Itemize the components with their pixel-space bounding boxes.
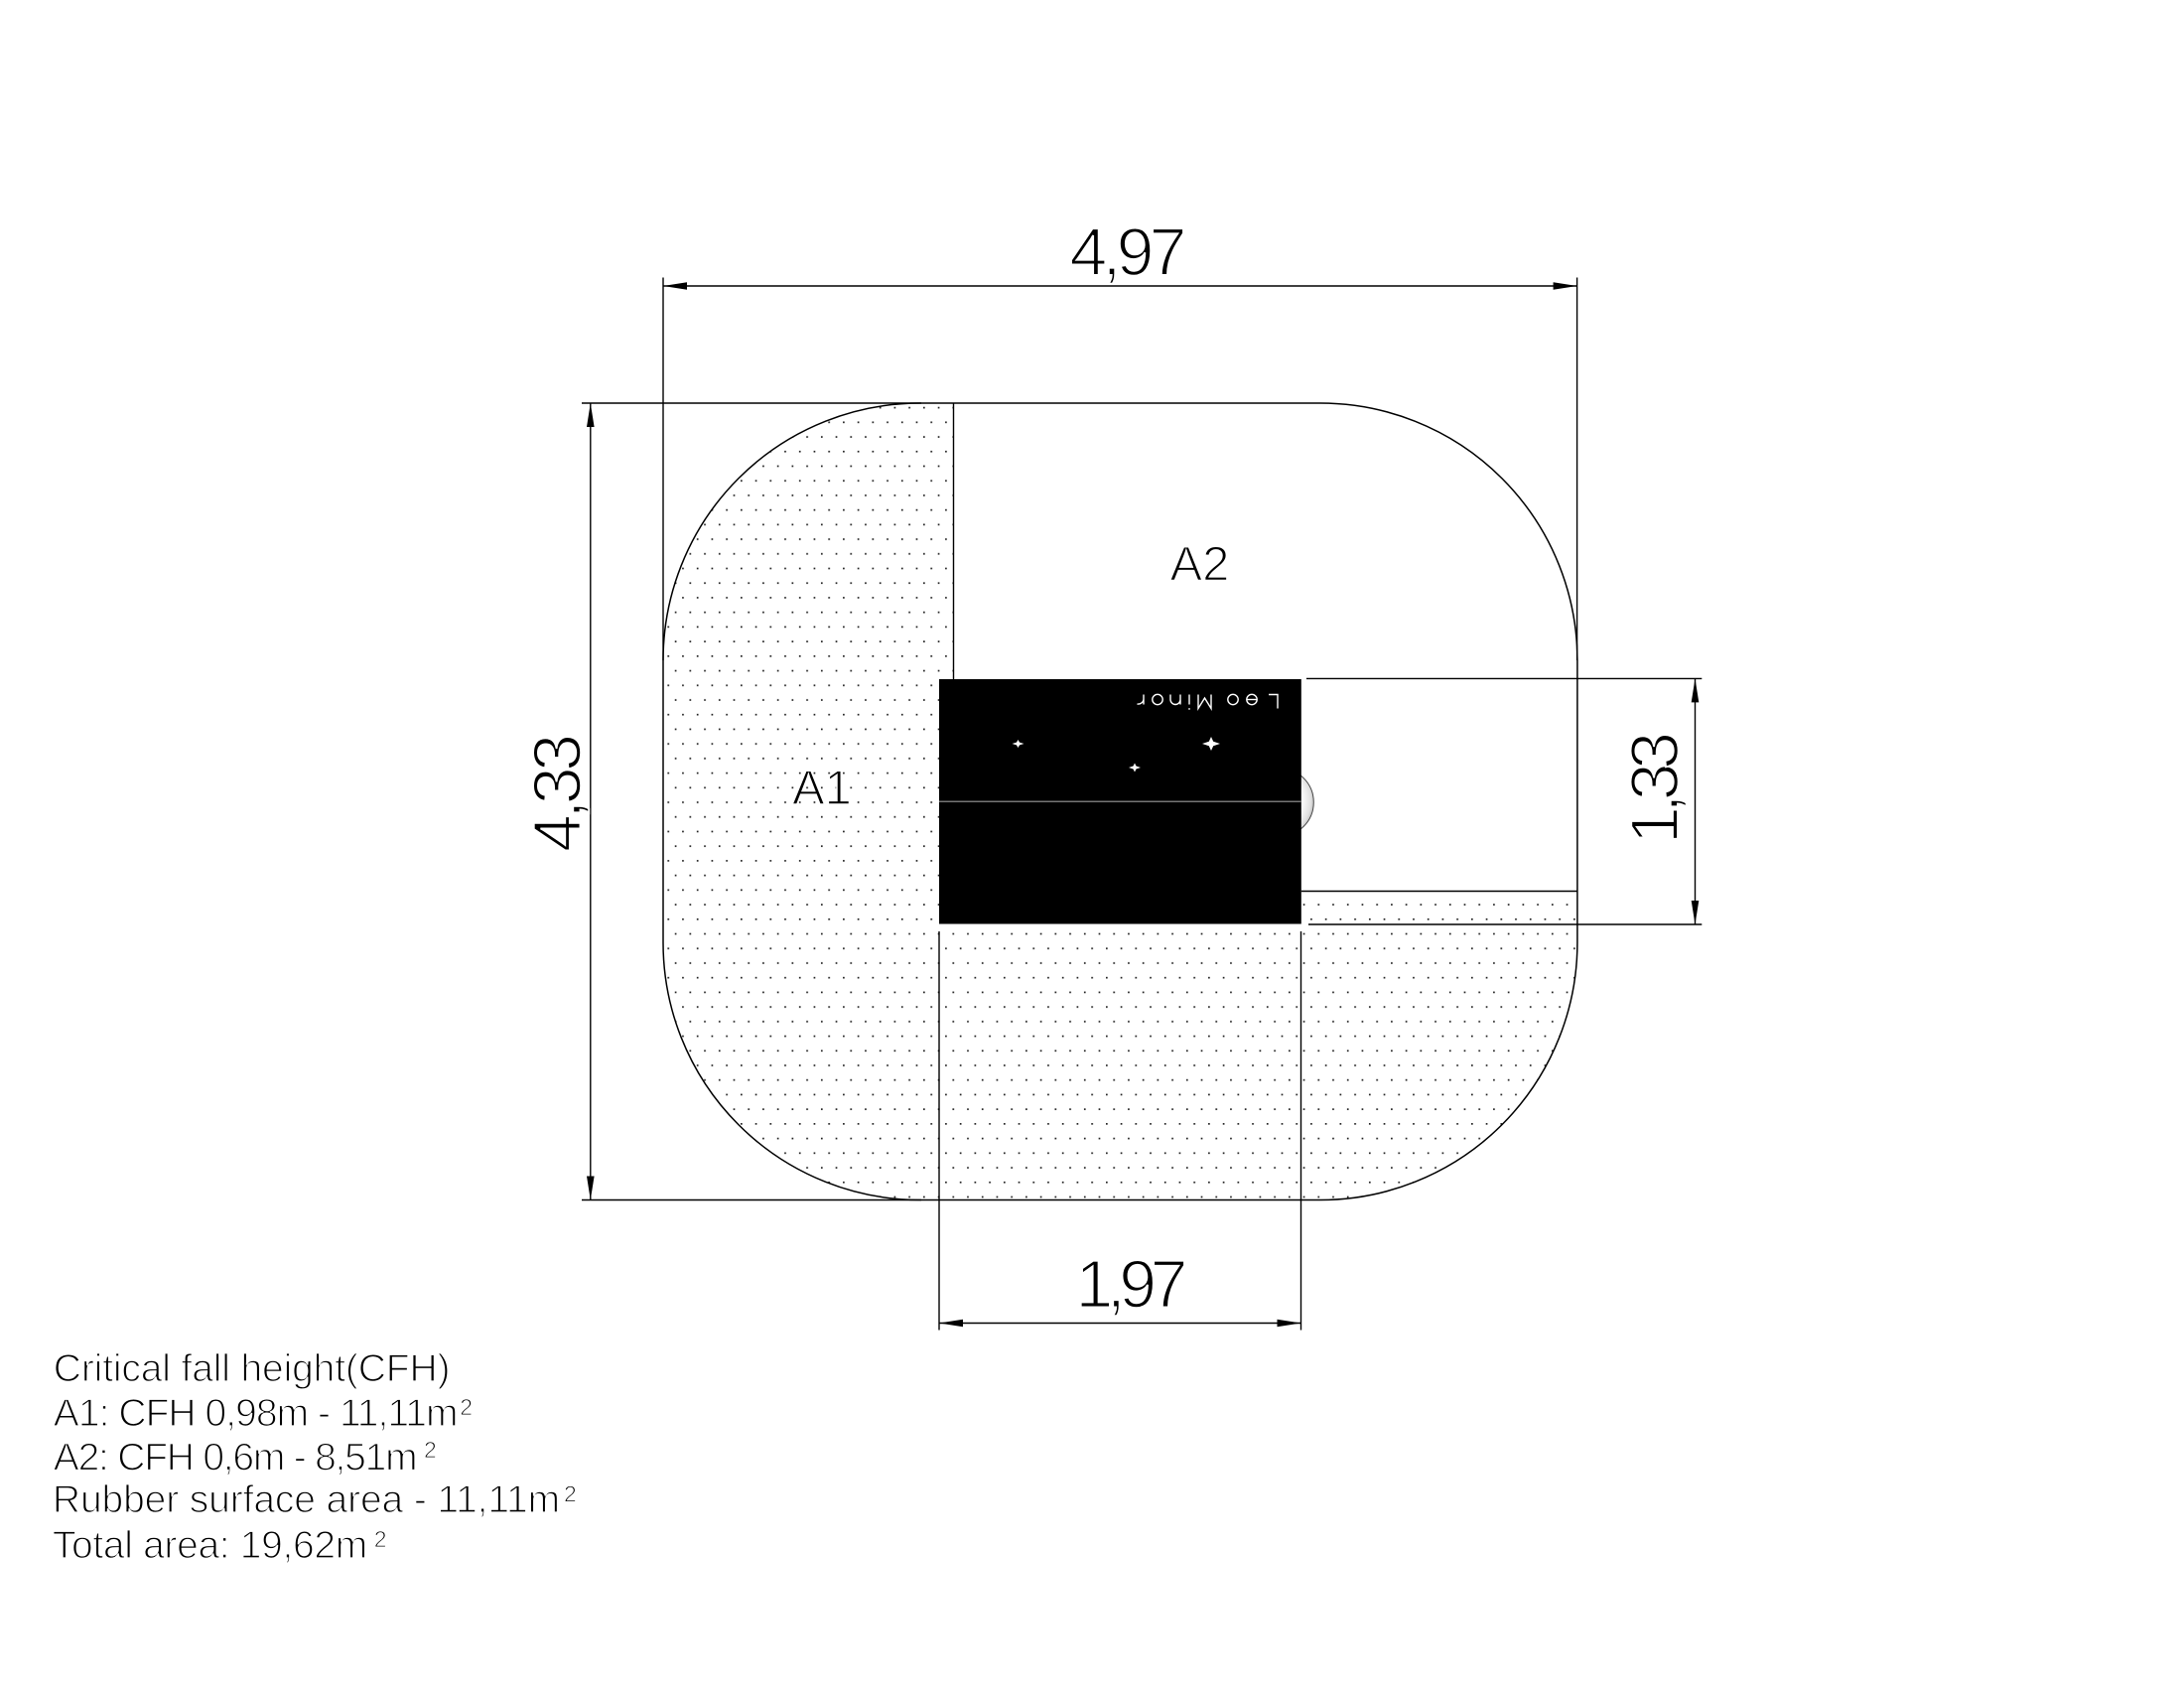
svg-text:A2: CFH 0,6m - 8,51m: A2: CFH 0,6m - 8,51m xyxy=(54,1437,418,1479)
svg-text:2: 2 xyxy=(374,1526,387,1552)
svg-text:2: 2 xyxy=(460,1394,473,1420)
svg-text:4,97: 4,97 xyxy=(1070,214,1187,290)
svg-text:A2: A2 xyxy=(1170,537,1230,591)
svg-text:1,97: 1,97 xyxy=(1076,1247,1188,1323)
svg-text:A1: CFH 0,98m - 11,11m: A1: CFH 0,98m - 11,11m xyxy=(54,1392,459,1435)
svg-text:1,33: 1,33 xyxy=(1617,732,1693,844)
svg-text:Total area: 19,62m: Total area: 19,62m xyxy=(53,1524,367,1567)
svg-text:2: 2 xyxy=(424,1437,437,1463)
svg-text:Rubber surface area - 11,11m: Rubber surface area - 11,11m xyxy=(53,1478,560,1521)
svg-text:2: 2 xyxy=(564,1481,577,1507)
svg-text:Critical fall height(CFH): Critical fall height(CFH) xyxy=(54,1347,451,1390)
svg-text:A1: A1 xyxy=(792,762,852,815)
svg-text:4,33: 4,33 xyxy=(520,734,596,852)
